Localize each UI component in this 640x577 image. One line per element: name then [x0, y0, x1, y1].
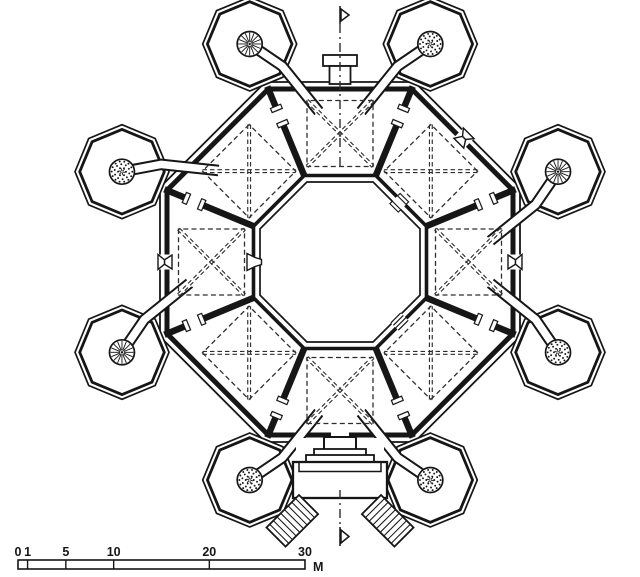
- scale-label-1: 1: [24, 545, 31, 559]
- spiral-stair-ssw: [237, 468, 262, 493]
- scale-bar-rect: [18, 560, 305, 569]
- floor-plan-page: 0 1 5 10 20 30 M: [0, 0, 640, 577]
- scale-label-0: 0: [15, 545, 22, 559]
- window-e: [507, 255, 523, 270]
- window-w: [158, 255, 174, 270]
- spiral-stair-wsw: [109, 340, 134, 365]
- scale-label-5: 30: [298, 545, 312, 559]
- scale-unit-label: M: [313, 560, 323, 574]
- scale-label-4: 20: [202, 545, 216, 559]
- spiral-stair-ene: [546, 159, 571, 184]
- scale-label-3: 10: [107, 545, 121, 559]
- spiral-stair-ese: [546, 340, 571, 365]
- scale-label-2: 5: [62, 545, 69, 559]
- spiral-stair-sse: [418, 468, 443, 493]
- spiral-stair-nne: [418, 31, 443, 56]
- spiral-stair-wnw: [109, 159, 134, 184]
- scale-bar: 0 1 5 10 20 30 M: [15, 545, 324, 574]
- plan-drawing: [75, 0, 605, 547]
- spiral-stair-nnw: [237, 31, 262, 56]
- floor-plan-canvas: 0 1 5 10 20 30 M: [0, 0, 640, 577]
